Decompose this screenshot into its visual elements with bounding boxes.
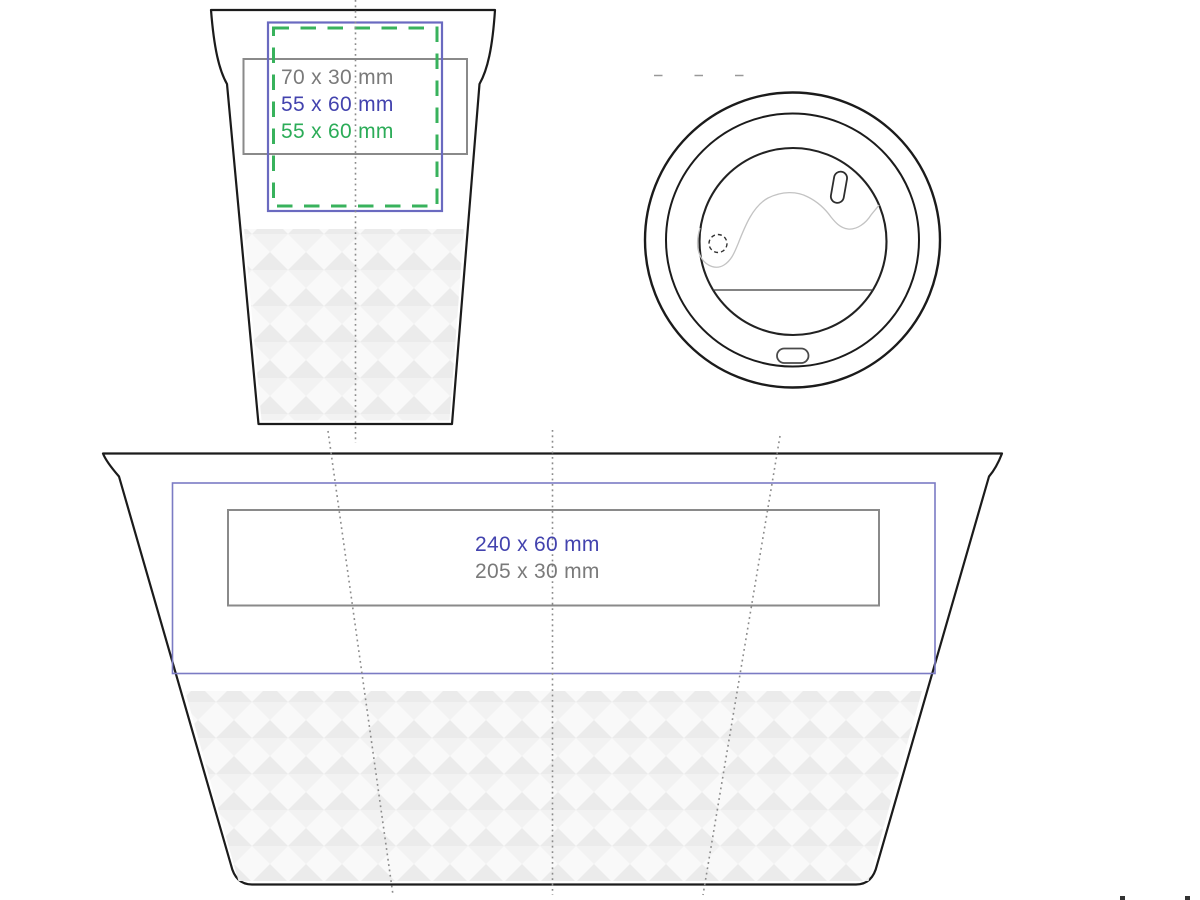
- unwrap-label-blue: 240 x 60 mm: [475, 531, 600, 558]
- unwrap-view: [103, 430, 1002, 895]
- unwrap-texture-pattern: [185, 691, 922, 881]
- front-label-blue: 55 x 60 mm: [281, 91, 394, 118]
- edge-mark-right: [1185, 896, 1190, 900]
- print-template-canvas: 70 x 30 mm 55 x 60 mm 55 x 60 mm 240 x 6…: [0, 0, 1200, 900]
- front-view-dimension-labels: 70 x 30 mm 55 x 60 mm 55 x 60 mm: [281, 64, 394, 145]
- unwrap-label-gray: 205 x 30 mm: [475, 558, 600, 585]
- lid-bottom-tab: [777, 349, 809, 364]
- front-label-gray: 70 x 30 mm: [281, 64, 394, 91]
- template-drawing: [0, 0, 1200, 900]
- edge-mark-left: [1120, 896, 1125, 900]
- front-label-green: 55 x 60 mm: [281, 118, 394, 145]
- cup-texture-pattern: [244, 229, 464, 421]
- lid-inner-circle: [700, 148, 887, 335]
- lid-view: [645, 76, 940, 388]
- bottom-edge-marks: [1120, 896, 1190, 900]
- unwrap-view-dimension-labels: 240 x 60 mm 205 x 30 mm: [475, 531, 600, 585]
